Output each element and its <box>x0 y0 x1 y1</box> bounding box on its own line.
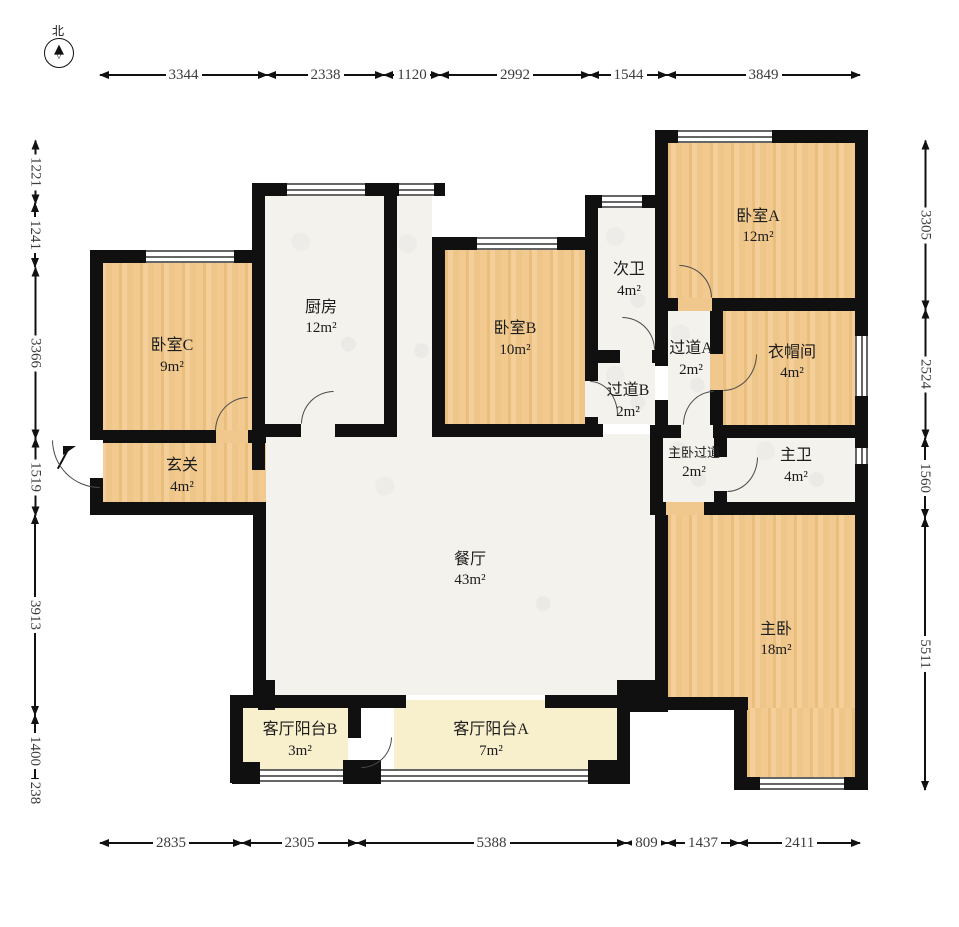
room-area: 4m² <box>613 281 645 301</box>
balcony-rail-b <box>260 769 343 782</box>
room-label-bedroom-c: 卧室C9m² <box>151 335 194 377</box>
dim-label: 2835 <box>153 835 189 852</box>
wall <box>232 762 260 784</box>
dim-arrow <box>32 266 40 276</box>
wall <box>384 196 397 437</box>
dim-label: 2524 <box>917 356 934 392</box>
room-area: 2m² <box>668 462 720 482</box>
wall <box>258 680 275 710</box>
dim-label: 809 <box>632 835 661 852</box>
wall <box>655 311 668 366</box>
dim-segment-left-4: 3913 <box>26 515 44 715</box>
dim-label: 2305 <box>282 835 318 852</box>
room-name: 主卫 <box>780 445 812 467</box>
dim-label: 3849 <box>746 67 782 84</box>
dim-segment-left-0: 1221 <box>26 140 44 203</box>
window-master-bedroom <box>760 777 844 790</box>
room-area: 9m² <box>151 357 194 377</box>
floor-plan-canvas: 北 ▲ ▽ 卧室A12m²衣帽间4m²次卫4m²过道A2m²过道B2m²卧室B1… <box>0 0 959 927</box>
window-master-bath <box>855 448 868 464</box>
dim-segment-right-0: 3305 <box>916 140 934 309</box>
window-kitchen <box>287 183 365 196</box>
room-label-master-bedroom: 主卧18m² <box>760 619 792 661</box>
dim-label: 5388 <box>474 835 510 852</box>
wall <box>253 502 266 708</box>
dim-label: 238 <box>27 779 44 808</box>
room-label-master-bath: 主卫4m² <box>780 445 812 487</box>
dim-segment-bottom-0: 2835 <box>100 834 242 852</box>
room-name: 客厅阳台A <box>453 719 529 741</box>
dim-segment-bottom-1: 2305 <box>242 834 357 852</box>
wall <box>655 130 668 311</box>
compass-icon: ▲ ▽ <box>44 38 74 68</box>
dim-label: 1519 <box>27 459 44 495</box>
room-label-closet: 衣帽间4m² <box>768 342 816 384</box>
door-arc-balcony <box>361 737 392 768</box>
room-label-bath-second: 次卫4m² <box>613 259 645 301</box>
dim-label: 2992 <box>497 67 533 84</box>
room-name: 衣帽间 <box>768 342 816 364</box>
dim-label: 1400 <box>27 733 44 769</box>
dim-segment-left-1: 1241 <box>26 203 44 267</box>
dim-arrow <box>32 139 40 149</box>
dim-label: 2338 <box>308 67 344 84</box>
dim-arrow <box>922 437 930 447</box>
dim-arrow <box>356 839 366 847</box>
wall <box>252 183 265 470</box>
door-opening <box>666 502 704 515</box>
room-label-balcony-b: 客厅阳台B3m² <box>263 719 338 761</box>
room-area: 12m² <box>305 318 337 338</box>
dim-arrow <box>922 517 930 527</box>
window-hall-strip <box>399 183 434 196</box>
dim-label: 1120 <box>394 67 429 84</box>
room-name: 过道A <box>669 338 713 360</box>
room-name: 主卧过道 <box>668 444 720 462</box>
room-name: 卧室C <box>151 335 194 357</box>
room-name: 玄关 <box>166 455 198 477</box>
dim-arrow <box>99 71 109 79</box>
dim-segment-right-1: 2524 <box>916 309 934 438</box>
window-bedroom-a <box>678 130 772 143</box>
dim-segment-left-2: 3366 <box>26 267 44 438</box>
dim-arrow <box>32 514 40 524</box>
dim-segment-top-4: 1544 <box>590 66 667 84</box>
dim-arrow <box>266 71 276 79</box>
wall <box>655 502 668 708</box>
room-area: 7m² <box>453 741 529 761</box>
room-label-entry: 玄关4m² <box>166 455 198 497</box>
room-name: 次卫 <box>613 259 645 281</box>
dim-segment-left-6: 238 <box>26 787 44 799</box>
window-bedroom-c <box>146 250 234 263</box>
room-name: 卧室A <box>736 206 780 228</box>
room-name: 餐厅 <box>454 549 486 571</box>
dim-arrow <box>922 139 930 149</box>
dim-arrow <box>32 202 40 212</box>
dim-segment-right-3: 5511 <box>916 518 934 790</box>
door-opening <box>620 350 652 363</box>
room-name: 客厅阳台B <box>263 719 338 741</box>
dim-arrow <box>851 71 861 79</box>
room-floor-hall-strip <box>397 196 432 434</box>
dim-segment-right-2: 1560 <box>916 438 934 518</box>
dim-arrow <box>439 71 449 79</box>
dim-label: 1560 <box>917 460 934 496</box>
room-area: 3m² <box>263 741 338 761</box>
north-label: 北 <box>52 22 64 39</box>
dim-label: 3366 <box>27 335 44 371</box>
dim-arrow <box>922 781 930 791</box>
room-name: 主卧 <box>760 619 792 641</box>
door-opening <box>678 298 712 311</box>
room-label-bedroom-b: 卧室B10m² <box>494 318 537 360</box>
dim-arrow <box>666 839 676 847</box>
compass-needle-south: ▽ <box>56 54 63 60</box>
dim-arrow <box>241 839 251 847</box>
dim-segment-bottom-5: 2411 <box>739 834 860 852</box>
room-area: 10m² <box>494 340 537 360</box>
room-floor-master-2 <box>747 708 855 778</box>
dim-segment-left-3: 1519 <box>26 438 44 515</box>
room-area: 4m² <box>768 363 816 383</box>
room-label-balcony-a: 客厅阳台A7m² <box>453 719 529 761</box>
dim-arrow <box>99 839 109 847</box>
window-bath-second <box>602 195 642 208</box>
balcony-rail-a <box>381 769 588 782</box>
dim-arrow <box>738 839 748 847</box>
dim-label: 1241 <box>27 217 44 253</box>
dim-label: 5511 <box>917 636 934 671</box>
wall <box>432 237 445 437</box>
wall <box>617 680 668 712</box>
dim-arrow <box>383 71 393 79</box>
wall <box>655 400 668 438</box>
room-area: 4m² <box>166 477 198 497</box>
dim-arrow <box>32 714 40 724</box>
dim-segment-top-0: 3344 <box>100 66 267 84</box>
dim-label: 2411 <box>782 835 817 852</box>
dim-segment-left-5: 1400 <box>26 715 44 787</box>
room-label-kitchen: 厨房12m² <box>305 297 337 339</box>
room-label-bedroom-a: 卧室A12m² <box>736 206 780 248</box>
dim-segment-bottom-4: 1437 <box>667 834 739 852</box>
room-floor-master-1 <box>668 515 855 708</box>
room-label-master-corridor: 主卧过道2m² <box>668 444 720 482</box>
door-arc-entry <box>52 440 100 488</box>
room-area: 18m² <box>760 640 792 660</box>
wall <box>90 502 266 515</box>
room-area: 43m² <box>454 570 486 590</box>
dim-label: 1544 <box>611 67 647 84</box>
room-area: 12m² <box>736 227 780 247</box>
dim-arrow <box>922 308 930 318</box>
dim-label: 1437 <box>685 835 721 852</box>
dim-label: 3305 <box>917 207 934 243</box>
room-label-corridor-a: 过道A2m² <box>669 338 713 380</box>
dim-segment-top-1: 2338 <box>267 66 384 84</box>
door-opening <box>301 424 335 437</box>
dim-segment-bottom-3: 809 <box>626 834 667 852</box>
door-opening <box>681 425 713 438</box>
wall <box>588 760 630 784</box>
room-area: 2m² <box>669 360 713 380</box>
dim-segment-top-5: 3849 <box>667 66 860 84</box>
room-label-dining: 餐厅43m² <box>454 549 486 591</box>
dim-segment-top-3: 2992 <box>440 66 590 84</box>
wall <box>432 424 603 437</box>
dim-segment-bottom-2: 5388 <box>357 834 626 852</box>
dim-segment-top-2: 1120 <box>384 66 440 84</box>
window-bedroom-b <box>477 237 557 250</box>
wall <box>734 710 747 790</box>
dim-label: 3344 <box>166 67 202 84</box>
room-name: 卧室B <box>494 318 537 340</box>
wall <box>348 708 361 738</box>
room-area: 2m² <box>607 402 650 422</box>
dim-arrow <box>589 71 599 79</box>
dim-arrow <box>32 437 40 447</box>
dim-arrow <box>666 71 676 79</box>
dim-label: 3913 <box>27 597 44 633</box>
room-name: 厨房 <box>305 297 337 319</box>
door-opening <box>216 430 248 443</box>
room-name: 过道B <box>607 380 650 402</box>
room-area: 4m² <box>780 467 812 487</box>
dim-label: 1221 <box>27 154 44 190</box>
room-label-corridor-b: 过道B2m² <box>607 380 650 422</box>
window-closet <box>855 336 868 396</box>
dim-arrow <box>851 839 861 847</box>
